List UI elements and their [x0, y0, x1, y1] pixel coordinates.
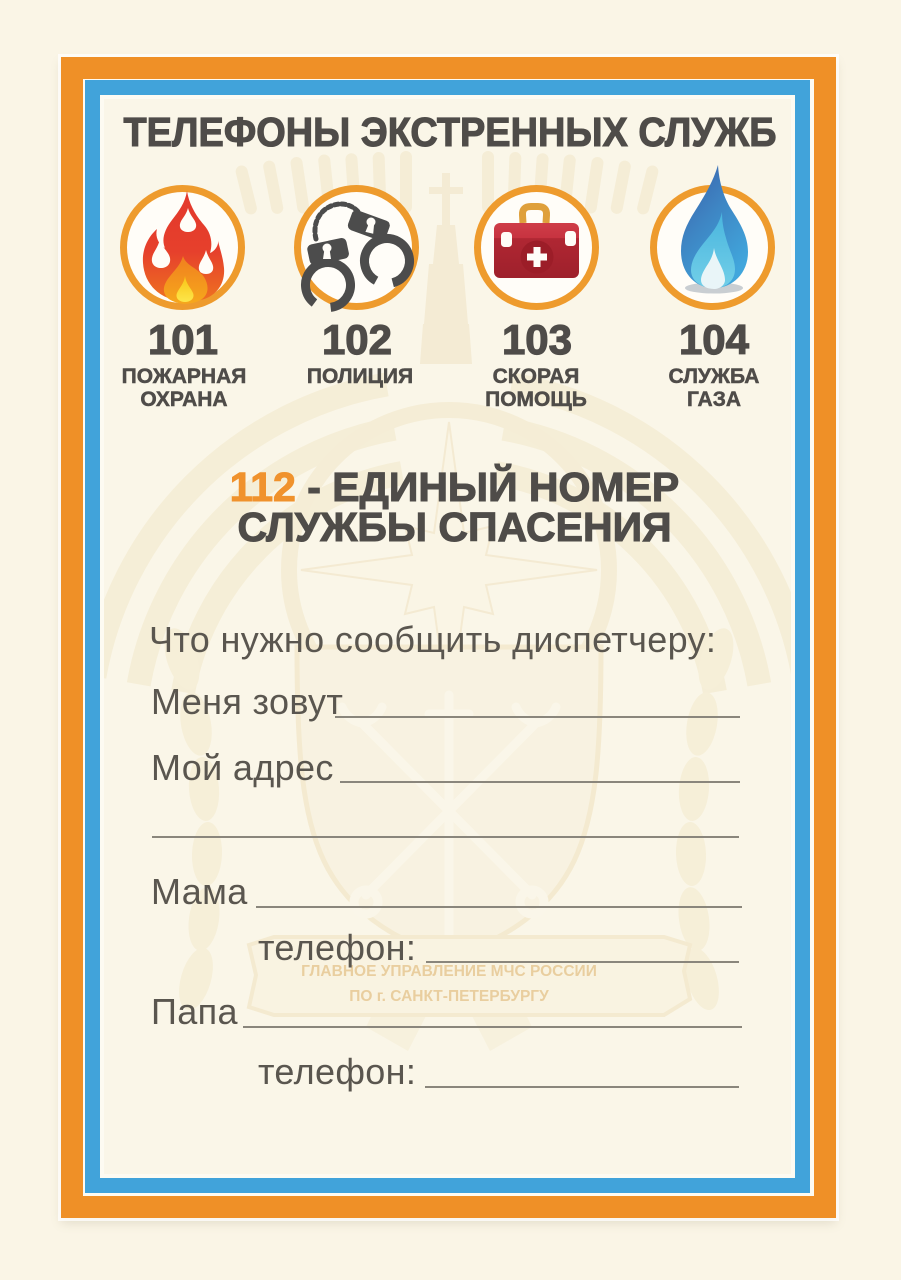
svg-text:ПО г. САНКТ-ПЕТЕРБУРГУ: ПО г. САНКТ-ПЕТЕРБУРГУ — [349, 988, 549, 1005]
